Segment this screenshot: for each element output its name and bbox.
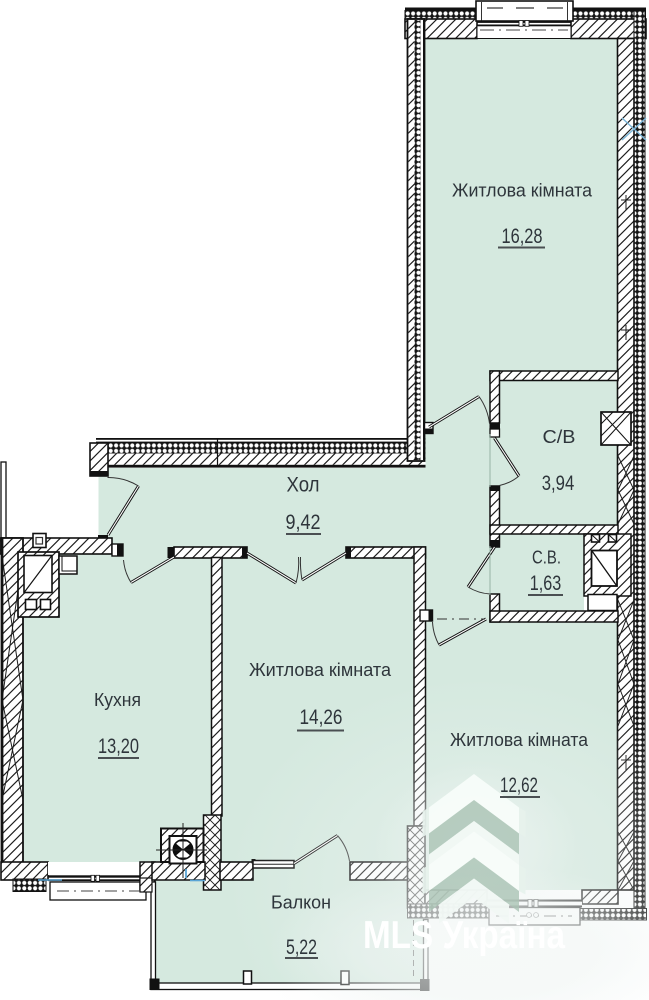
svg-text:С/В: С/В [543, 426, 576, 447]
svg-text:Балкон: Балкон [271, 892, 331, 913]
svg-text:3,94: 3,94 [542, 471, 575, 495]
svg-text:16,28: 16,28 [502, 224, 543, 248]
svg-text:14,26: 14,26 [300, 705, 343, 729]
svg-text:13,20: 13,20 [98, 734, 139, 758]
svg-text:5,22: 5,22 [286, 935, 317, 959]
svg-text:9,42: 9,42 [286, 510, 321, 534]
svg-text:Житлова кімната: Житлова кімната [450, 729, 589, 750]
svg-text:Кухня: Кухня [94, 689, 141, 710]
svg-text:Житлова кімната: Житлова кімната [249, 659, 392, 680]
svg-text:Хол: Хол [287, 474, 320, 497]
svg-text:12,62: 12,62 [500, 773, 538, 797]
svg-text:С.В.: С.В. [532, 547, 561, 568]
svg-text:MLS Україна: MLS Україна [363, 914, 566, 957]
svg-text:1,63: 1,63 [530, 571, 562, 595]
svg-text:Житлова кімната: Житлова кімната [452, 180, 593, 201]
